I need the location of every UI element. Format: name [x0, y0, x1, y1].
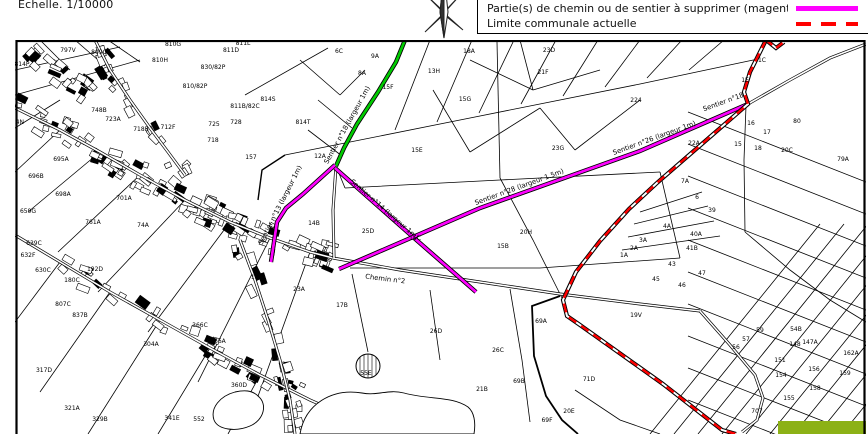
parcel-label: 43 [668, 261, 676, 268]
parcel-label: 69B [513, 378, 525, 385]
parcel-label: 630C [35, 267, 51, 274]
parcel-label: 728 [230, 119, 242, 126]
parcel-label: 695A [53, 156, 69, 163]
parcel-label: 46 [678, 282, 686, 289]
parcel-label: 21B [476, 386, 488, 393]
parcel-label: 20E [563, 408, 575, 415]
parcel-label: 807C [55, 301, 71, 308]
parcel-label: 15B [497, 243, 509, 250]
parcel-label: 19V [630, 312, 643, 319]
parcel-label: 8A [358, 70, 367, 77]
parcel-label: 761A [85, 219, 101, 226]
parcel-label: 725 [208, 121, 220, 128]
parcel-label: 69A [535, 318, 548, 325]
parcel-label: 54B [790, 326, 802, 333]
parcel-label: 18A [463, 48, 476, 55]
parcel-label: 723A [105, 116, 121, 123]
parcel-label: 696B [28, 173, 44, 180]
parcel-label: 23A [293, 286, 306, 293]
parcel-label: 45 [652, 276, 660, 283]
parcel-label: 74A [137, 222, 150, 229]
parcel-label: 23G [552, 145, 565, 152]
parcel-label: 47 [698, 270, 706, 277]
parcel-label: 157 [245, 154, 257, 161]
parcel-label: 13H [428, 68, 440, 75]
magenta-line-swatch [796, 6, 858, 11]
parcel-label: 41B [686, 245, 698, 252]
parcel-label: 162A [843, 350, 859, 357]
parcel-label: 21F [537, 69, 549, 76]
parcel-label: 712F [161, 124, 176, 131]
parcel-label: 1C [758, 57, 766, 64]
parcel-label: 6C [335, 48, 343, 55]
parcel-label: 366A [210, 338, 226, 345]
parcel-label: 26C [492, 347, 504, 354]
village-block [43, 125, 50, 131]
parcel-label: 698A [55, 191, 71, 198]
parcel-label: 2A [630, 245, 639, 252]
parcel-label: 7A [681, 178, 690, 185]
legend-item-limite: Limite communale actuelle [487, 17, 862, 30]
parcel-label: 151 [774, 357, 786, 364]
parcel-label: 810H [152, 57, 168, 64]
parcel-label: 156 [808, 366, 820, 373]
parcel-label: 55E [360, 370, 372, 377]
parcel-label: 158 [809, 385, 821, 392]
parcel-label: 329B [92, 416, 108, 423]
parcel-label: 39 [708, 207, 716, 214]
parcel-label: 57 [742, 336, 750, 343]
parcel-label: 6 [695, 194, 699, 201]
parcel-label: 811B/82C [230, 103, 259, 110]
legend-item-suppress: Partie(s) de chemin ou de sentier à supp… [487, 2, 862, 15]
parcel-label: 18D [251, 274, 264, 281]
parcel-label: 718B [133, 126, 149, 133]
parcel-label: 79A [837, 156, 850, 163]
parcel-label: 14B [308, 220, 320, 227]
legend-item-label: Partie(s) de chemin ou de sentier à supp… [487, 2, 788, 15]
parcel-label: 154 [775, 372, 787, 379]
parcel-label: 15G [459, 96, 472, 103]
parcel-label: 69F [541, 417, 553, 424]
parcel-label: 748B [91, 107, 107, 114]
parcel-label: 23D [543, 47, 556, 54]
parcel-label: 4A [663, 223, 672, 230]
parcel-label: 20C [781, 147, 793, 154]
village-block [288, 426, 293, 432]
parcel-label: 155 [783, 395, 795, 402]
parcel-label: 17B [336, 302, 348, 309]
parcel-label: 22A [688, 140, 701, 147]
parcel-label: 25D [362, 228, 375, 235]
parcel-label: 18 [754, 145, 762, 152]
parcel-label: 9A [371, 53, 380, 60]
village-block [232, 245, 238, 253]
parcel-label: 810/82P [183, 83, 208, 90]
parcel-label: 147A [802, 339, 818, 346]
parcel-label: 707 [751, 408, 763, 415]
parcel-label: 814S [260, 96, 275, 103]
parcel-label: 15F [382, 84, 394, 91]
parcel-label: 797V [60, 47, 76, 54]
parcel-label: 15 [734, 141, 742, 148]
parcel-label: 56 [732, 344, 740, 351]
parcel-label: 59 [756, 327, 764, 334]
olive-highlight-swatch [778, 421, 866, 434]
parcel-label: 1E [741, 77, 749, 84]
parcel-label: 3A [639, 237, 648, 244]
parcel-label: 341E [164, 415, 179, 422]
parcel-label: 718 [207, 137, 219, 144]
parcel-label: 811D [223, 47, 239, 54]
parcel-label: 830/82P [201, 64, 226, 71]
parcel-label: 159 [839, 370, 851, 377]
parcel-label: 20H [520, 229, 532, 236]
parcel-label: 1A [620, 252, 629, 259]
compass-north-icon [418, 0, 470, 38]
parcel-label: 366C [192, 322, 208, 329]
parcel-label: 180C [64, 277, 80, 284]
parcel-label: 701A [116, 195, 132, 202]
scale-label: Echelle. 1/10000 [18, 0, 114, 11]
parcel-label: 80 [793, 118, 801, 125]
parcel-label: 148 [789, 341, 801, 348]
map-svg: 797V809C810G810H830/82P810/82P811L811D81… [15, 40, 866, 434]
parcel-label: 837B [72, 312, 88, 319]
parcel-label: 639C [26, 240, 42, 247]
village-block [282, 410, 288, 418]
legend: Partie(s) de chemin ou de sentier à supp… [477, 0, 868, 34]
parcel-label: 16 [747, 120, 755, 127]
parcel-label: 17 [763, 129, 771, 136]
parcel-label: 304A [143, 341, 159, 348]
parcel-label: 659G [20, 208, 36, 215]
parcel-label: 15E [411, 147, 423, 154]
red-dashed-swatch [796, 22, 858, 26]
parcel-label: 317D [36, 367, 52, 374]
parcel-label: 40A [690, 231, 703, 238]
parcel-label: 26D [430, 328, 443, 335]
parcel-label: 321A [64, 405, 80, 412]
parcel-label: 809C [91, 49, 107, 56]
parcel-label: 71D [583, 376, 596, 383]
parcel-label: 632F [21, 252, 36, 259]
parcel-label: 224 [630, 97, 642, 104]
parcel-label: 814T [295, 119, 310, 126]
parcel-label: 192D [87, 266, 103, 273]
parcel-label: 360D [231, 382, 247, 389]
legend-item-label: Limite communale actuelle [487, 17, 788, 30]
parcel-label: 552 [193, 416, 205, 423]
cadastral-map: 797V809C810G810H830/82P810/82P811L811D81… [15, 40, 866, 434]
